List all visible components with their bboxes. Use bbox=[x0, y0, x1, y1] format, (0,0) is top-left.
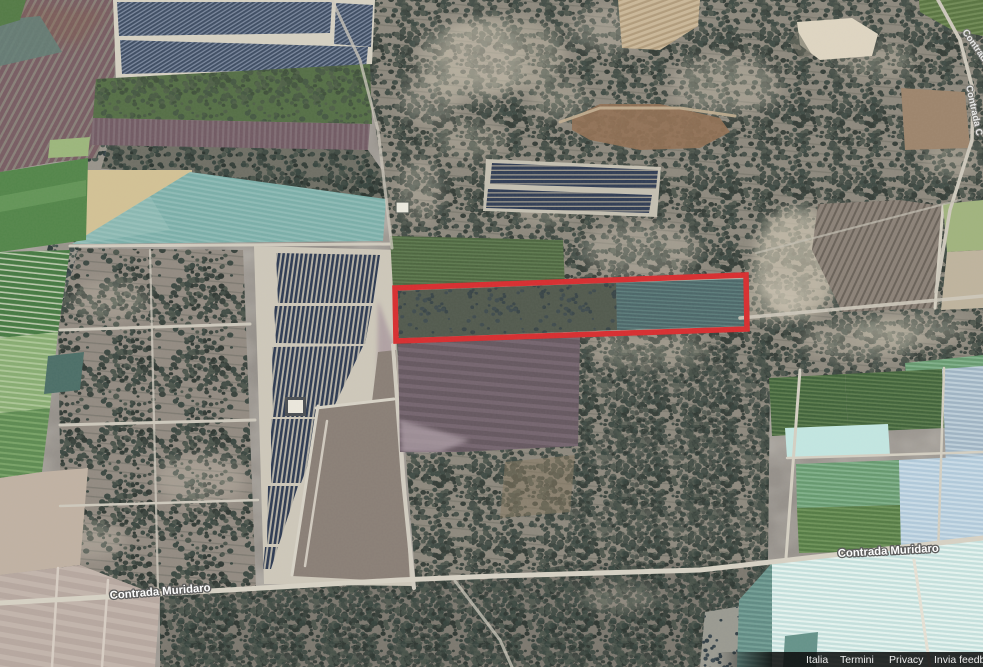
svg-text:Privacy: Privacy bbox=[889, 654, 924, 666]
svg-text:Italia: Italia bbox=[806, 654, 828, 666]
svg-text:Invia feedba: Invia feedba bbox=[934, 654, 983, 666]
svg-text:Termini: Termini bbox=[840, 654, 874, 666]
